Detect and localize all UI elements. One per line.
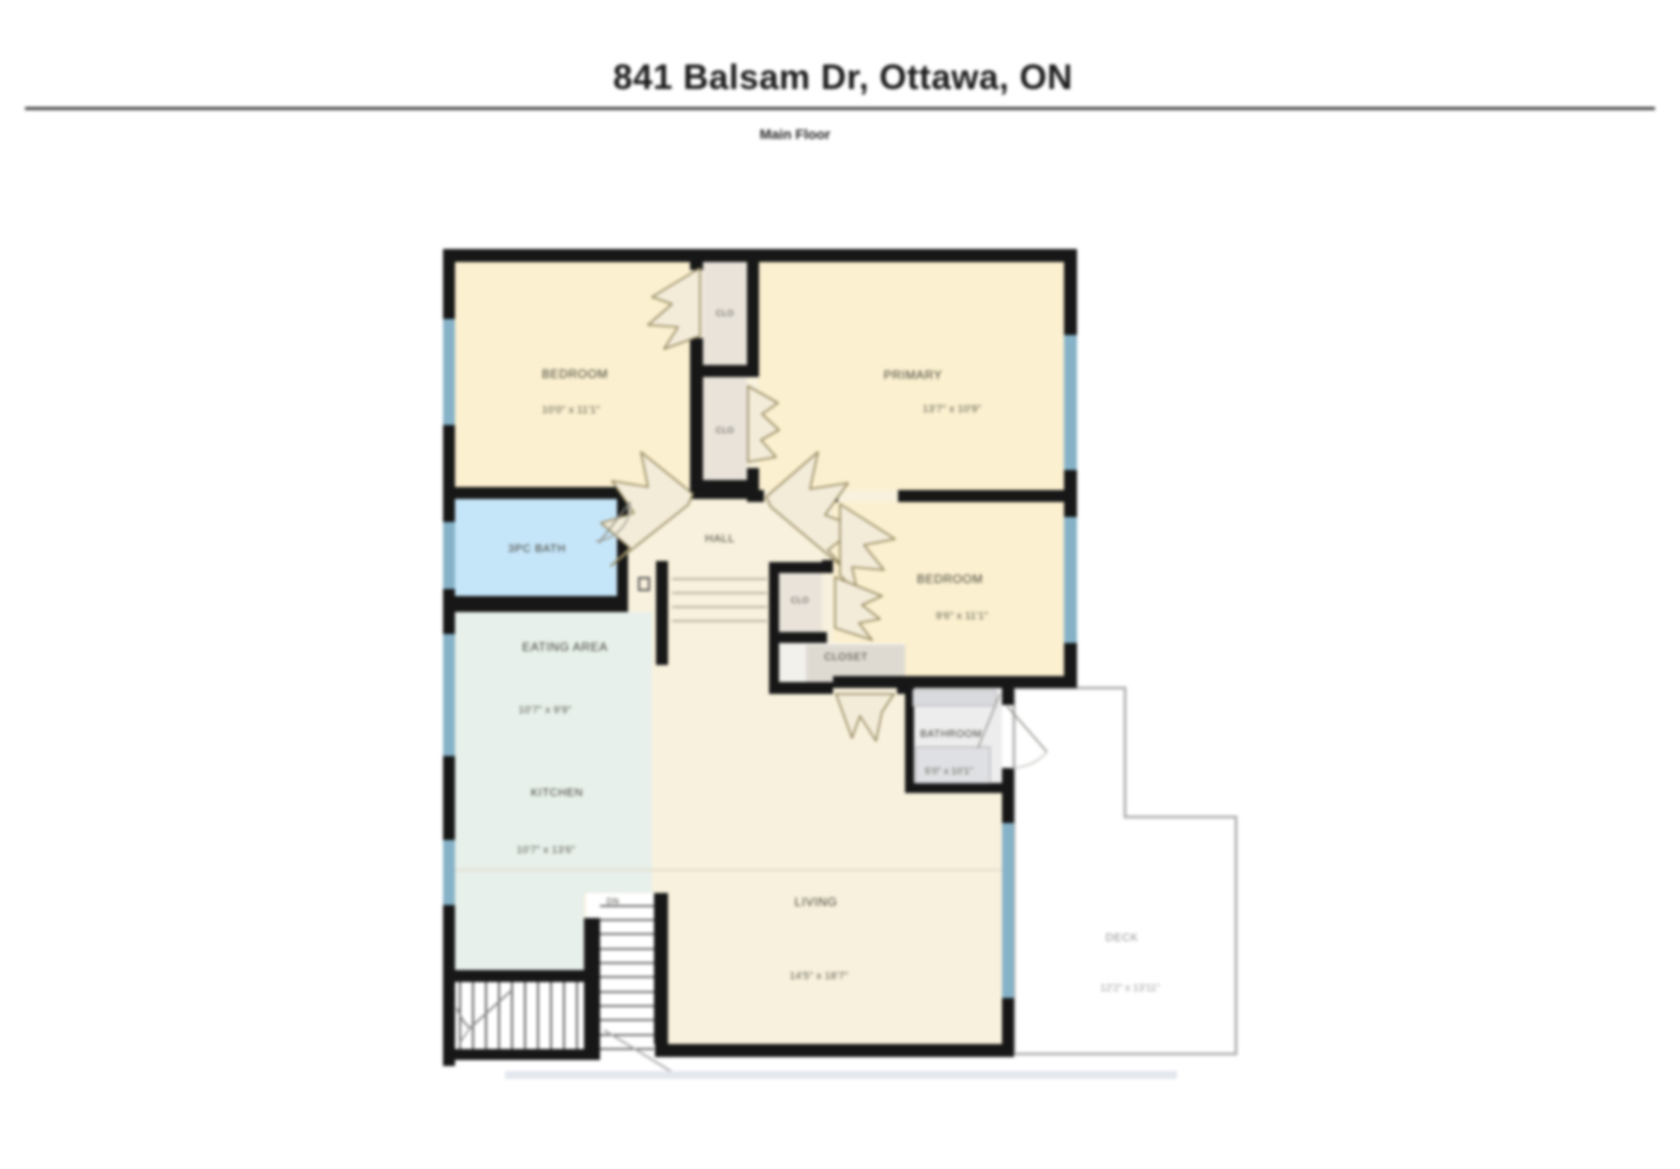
- svg-text:BATHROOM: BATHROOM: [920, 729, 982, 740]
- svg-text:14'5" x 18'7": 14'5" x 18'7": [790, 971, 849, 982]
- svg-text:841 Balsam Dr, Ottawa, ON: 841 Balsam Dr, Ottawa, ON: [613, 58, 1073, 97]
- svg-text:13'7" x 10'9": 13'7" x 10'9": [923, 404, 982, 415]
- svg-text:PRIMARY: PRIMARY: [884, 368, 943, 382]
- svg-text:CLO: CLO: [791, 596, 809, 605]
- svg-text:CLO: CLO: [716, 309, 734, 318]
- svg-text:KITCHEN: KITCHEN: [531, 787, 583, 799]
- svg-text:10'7" x 13'6": 10'7" x 13'6": [517, 845, 576, 856]
- svg-text:BEDROOM: BEDROOM: [917, 572, 983, 586]
- svg-text:DN: DN: [607, 897, 620, 906]
- svg-text:EATING AREA: EATING AREA: [522, 640, 608, 654]
- svg-text:10'0" x 11'1": 10'0" x 11'1": [542, 405, 600, 416]
- svg-text:9'6" x 11'1": 9'6" x 11'1": [936, 611, 988, 622]
- svg-text:12'2" x 13'11": 12'2" x 13'11": [1100, 983, 1160, 994]
- svg-text:LIVING: LIVING: [795, 895, 838, 909]
- svg-text:BEDROOM: BEDROOM: [542, 367, 608, 381]
- svg-text:Main Floor: Main Floor: [760, 126, 831, 142]
- svg-text:10'7" x 9'9": 10'7" x 9'9": [519, 705, 572, 716]
- svg-text:CLOSET: CLOSET: [824, 652, 868, 663]
- svg-text:HALL: HALL: [705, 533, 735, 545]
- svg-text:5'0" x 10'1": 5'0" x 10'1": [925, 766, 973, 776]
- svg-text:CLO: CLO: [716, 426, 734, 435]
- svg-text:DECK: DECK: [1106, 932, 1139, 944]
- svg-text:3PC BATH: 3PC BATH: [508, 543, 566, 555]
